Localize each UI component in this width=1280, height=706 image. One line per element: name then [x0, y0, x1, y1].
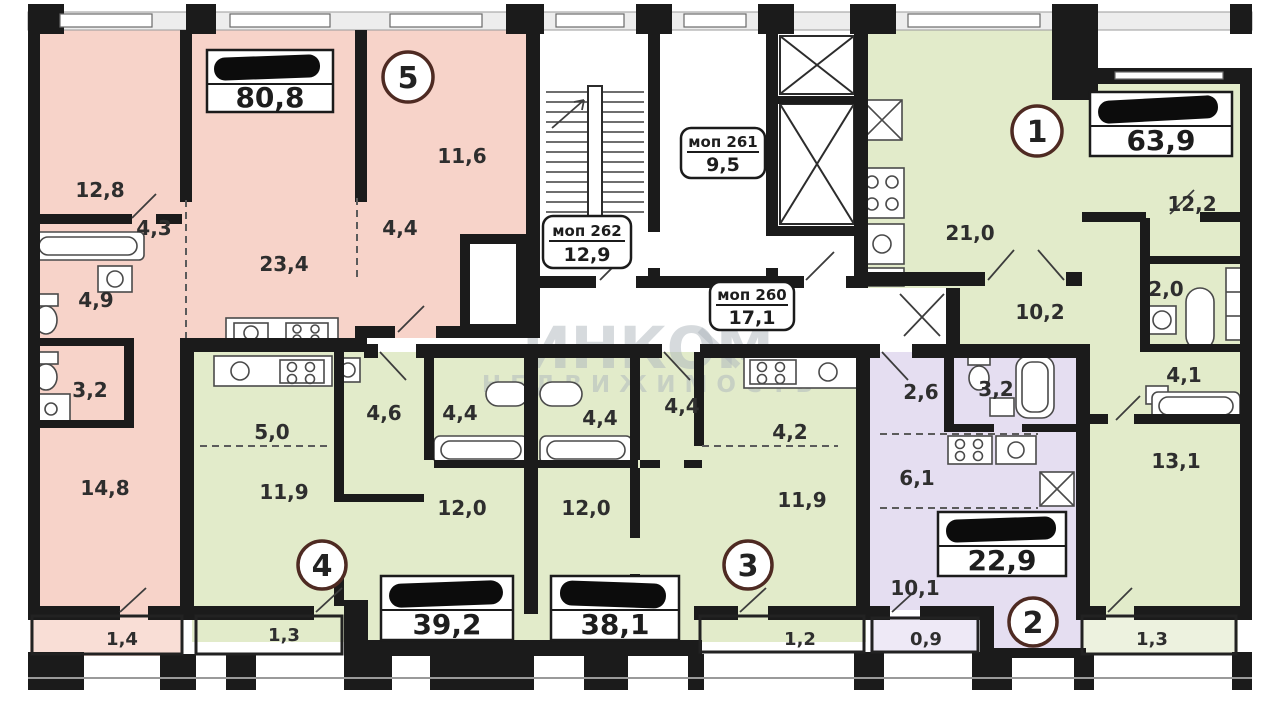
water-heater-icon [1186, 288, 1214, 350]
sink-icon [540, 382, 582, 406]
mop-260-label: моп 260 17,1 [710, 282, 794, 330]
room-area-label: 11,6 [437, 144, 486, 168]
apt5-total-box: 80,8 [207, 50, 333, 114]
svg-text:моп 262: моп 262 [552, 222, 621, 240]
mop-261-label: моп 261 9,5 [681, 128, 765, 178]
svg-text:9,5: 9,5 [706, 154, 740, 176]
svg-text:63,9: 63,9 [1126, 124, 1195, 157]
room-area-label: 12,0 [437, 496, 486, 520]
room-area-label: 12,0 [561, 496, 610, 520]
room-area-label: 1,3 [1136, 629, 1168, 650]
room-area-label: 4,4 [382, 216, 417, 240]
svg-text:22,9: 22,9 [967, 544, 1036, 577]
duct-icon [1226, 268, 1242, 340]
room-area-label: 4,4 [582, 406, 617, 430]
room-area-label: 10,1 [890, 576, 939, 600]
room-area-label: 4,6 [366, 401, 401, 425]
duct-icon [1040, 472, 1074, 506]
svg-text:12,9: 12,9 [564, 244, 611, 266]
room-area-label: 4,4 [442, 401, 477, 425]
kitchen-counter-icon [744, 356, 866, 388]
svg-text:80,8: 80,8 [235, 81, 304, 114]
duct-shaft [470, 244, 516, 324]
floor-plan: ИНКОМ НЕДВИЖИМОСТЬ [0, 0, 1280, 706]
svg-text:1: 1 [1027, 115, 1048, 150]
apt3-total-box: 38,1 [551, 576, 679, 641]
room-area-label: 4,9 [78, 288, 113, 312]
redacted-name [560, 580, 667, 609]
room-area-label: 23,4 [259, 252, 308, 276]
room-area-label: 6,1 [899, 466, 934, 490]
svg-text:38,1: 38,1 [580, 608, 649, 641]
apt5-number-badge: 5 [383, 52, 433, 102]
room-area-label: 2,0 [1148, 277, 1183, 301]
svg-text:39,2: 39,2 [412, 608, 481, 641]
bathtub-icon [32, 232, 144, 260]
room-area-label: 4,3 [136, 216, 171, 240]
svg-text:моп 261: моп 261 [688, 133, 757, 151]
svg-text:3: 3 [738, 549, 759, 584]
room-area-label: 3,2 [978, 377, 1013, 401]
room-area-label: 2,6 [903, 380, 938, 404]
room-area-label: 4,4 [664, 394, 699, 418]
room-area-label: 11,9 [777, 488, 826, 512]
bathtub-icon [540, 436, 632, 464]
room-area-label: 4,1 [1166, 363, 1201, 387]
room-area-label: 10,2 [1015, 300, 1064, 324]
apt1-number-badge: 1 [1012, 106, 1062, 156]
redacted-name [214, 54, 321, 81]
mop-262-label: моп 262 12,9 [543, 216, 631, 268]
svg-text:5: 5 [398, 61, 419, 96]
svg-text:моп 260: моп 260 [717, 286, 786, 304]
room-area-label: 4,2 [772, 420, 807, 444]
kitchen-counter-icon [214, 356, 332, 386]
room-area-label: 3,2 [72, 378, 107, 402]
room-area-label: 12,8 [75, 178, 124, 202]
redacted-name [389, 580, 504, 608]
room-area-label: 11,9 [259, 480, 308, 504]
kitchen-counter-icon [948, 436, 1036, 464]
room-area-label: 13,1 [1151, 449, 1200, 473]
room-area-label: 0,9 [910, 629, 942, 650]
room-area-label: 21,0 [945, 221, 994, 245]
room-area-label: 1,4 [106, 629, 138, 650]
bathtub-icon [434, 436, 528, 464]
elevators [780, 36, 854, 224]
sink-icon [486, 382, 528, 406]
floor-plan-canvas: ИНКОМ НЕДВИЖИМОСТЬ [0, 0, 1280, 706]
svg-text:2: 2 [1023, 606, 1044, 641]
room-area-label: 1,3 [268, 625, 300, 646]
room-area-label: 12,2 [1167, 192, 1216, 216]
room-area-label: 14,8 [80, 476, 129, 500]
room-area-label: 5,0 [254, 420, 289, 444]
apt4-total-box: 39,2 [381, 576, 513, 641]
room-area-label: 1,2 [784, 629, 816, 650]
svg-text:4: 4 [312, 549, 333, 584]
apt1-total-box: 63,9 [1090, 92, 1232, 157]
apt2-total-box: 22,9 [938, 512, 1066, 577]
apt4-number-badge: 4 [298, 541, 346, 589]
washer-icon [1148, 306, 1176, 334]
svg-text:17,1: 17,1 [729, 307, 776, 329]
redacted-name [946, 516, 1057, 543]
bathtub-icon [1016, 356, 1054, 418]
apt2-number-badge: 2 [1009, 598, 1057, 646]
apt3-number-badge: 3 [724, 541, 772, 589]
